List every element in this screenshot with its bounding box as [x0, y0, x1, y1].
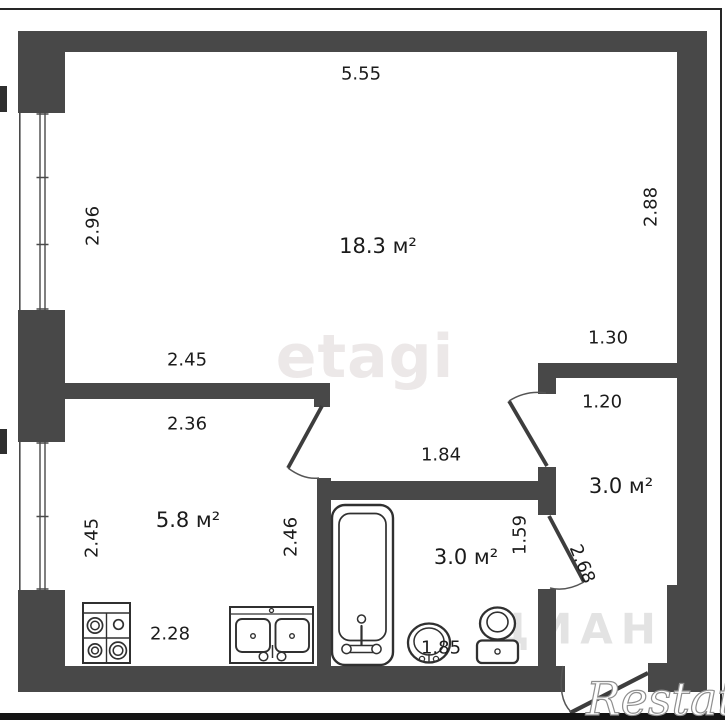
dim-hall-top-width: 1.30: [588, 328, 628, 349]
kitchen-door-icon: [288, 406, 322, 478]
stove-icon: [83, 603, 130, 663]
toilet-icon: [477, 608, 518, 664]
room-label-hallway: 3.0 м²: [589, 474, 653, 498]
dim-living-left-height: 2.96: [83, 206, 104, 246]
bathtub-icon: [332, 505, 393, 665]
dim-kitchen-wall-bottom: 2.36: [167, 414, 207, 435]
window-living-icon: [20, 113, 49, 310]
floor-plan: etagi ЦИАН: [0, 0, 725, 725]
room-label-bathroom: 3.0 м²: [434, 545, 498, 569]
dim-kitchen-right-height: 2.46: [281, 517, 302, 557]
plan-linework: [0, 0, 725, 725]
watermark-restate: Restate: [586, 672, 725, 725]
dim-kitchen-wall-top: 2.45: [167, 350, 207, 371]
window-kitchen-icon: [20, 442, 49, 590]
dim-kitchen-left-height: 2.45: [82, 518, 103, 558]
dim-corridor-width: 1.84: [421, 445, 461, 466]
dim-bath-right-height: 1.59: [510, 515, 531, 555]
dim-top-width: 5.55: [341, 64, 381, 85]
room-label-living: 18.3 м²: [339, 234, 417, 258]
dim-kitchen-bottom-width: 2.28: [150, 624, 190, 645]
dim-living-right-height: 2.88: [641, 187, 662, 227]
hallway-door-icon: [509, 392, 547, 466]
kitchen-sink-icon: [230, 607, 313, 663]
room-label-kitchen: 5.8 м²: [156, 508, 220, 532]
dim-hall-inner-width: 1.20: [582, 392, 622, 413]
dim-bath-bottom-width: 1.85: [421, 638, 461, 659]
